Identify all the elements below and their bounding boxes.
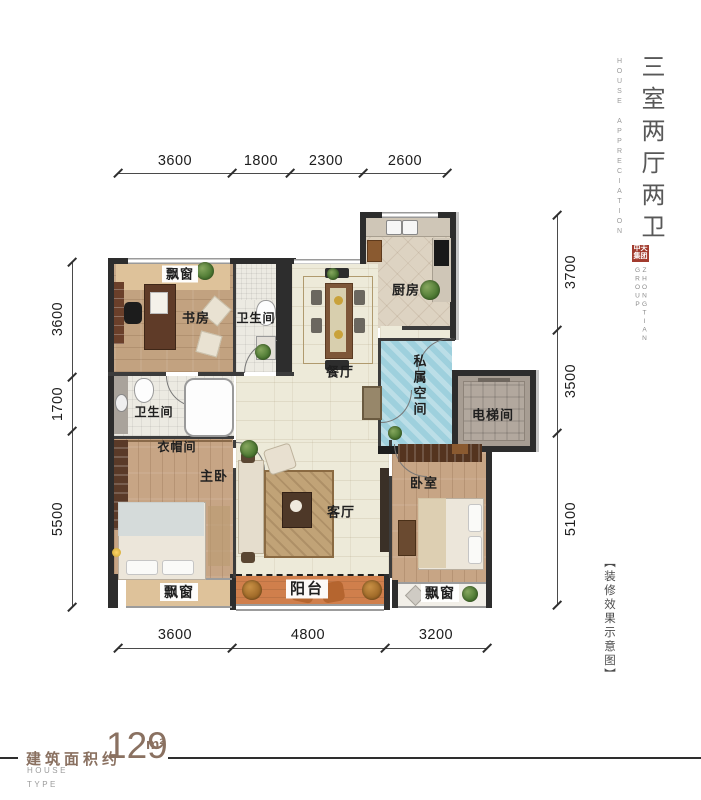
master-rug [208,506,230,566]
wall-corner [108,574,118,608]
teddy-shelf-item [452,444,468,454]
master-bed-blanket [118,502,204,536]
wall-living-bedroom [389,476,392,578]
bay-window-glass [126,606,232,608]
dim-top-3: 2300 [309,153,343,169]
dining-chair [311,318,322,333]
dim-bottom-1: 3600 [158,627,192,643]
wall-outer-line [536,370,539,452]
dim-top-4: 2600 [388,153,422,169]
footer-rule-left [0,757,18,759]
wall-balcony-right [384,574,390,610]
wall-elevator-top [452,370,536,376]
wall-mid [276,372,294,376]
toilet [134,378,154,403]
dim-top-2: 1800 [244,153,278,169]
side-table [241,552,255,563]
dim-left-1: 3600 [50,302,66,336]
pillow [162,560,194,575]
label-elevator: 电梯间 [472,409,514,422]
page-subtitle-en: HOUSE APPRECIATION [616,58,623,238]
balcony-boundary-dashed [236,574,384,576]
dim-top-1: 3600 [158,153,192,169]
label-bay-window-top: 飘窗 [162,266,198,283]
dim-left-3: 5500 [50,502,66,536]
pillow [468,504,482,532]
dim-bottom-3: 3200 [419,627,453,643]
bedroom-blanket [418,498,446,568]
study-papers [150,292,168,314]
dining-plate [334,330,343,339]
plant [196,262,214,280]
label-bedroom: 卧室 [410,477,438,490]
kitchen-sink [402,220,418,235]
bathtub [184,378,234,437]
balcony-rail [236,609,384,611]
study-chair [124,302,142,324]
dim-line-bottom [118,648,487,649]
label-private-space: 私属空间 [413,354,426,418]
bedroom-dresser [398,520,416,556]
label-dining: 餐厅 [326,366,354,379]
wall-bedroom-right [486,452,492,584]
dim-right-2: 3500 [563,364,579,398]
plant [240,440,258,458]
label-bath-top: 卫生间 [236,312,275,324]
dining-chair [311,290,322,305]
bath-sink [115,394,128,412]
study-bookshelf [114,282,124,344]
entry-mat [362,386,382,420]
plant [462,586,478,602]
wall-bay-post [486,580,492,608]
dim-left-2: 1700 [50,387,66,421]
tv-console [380,468,389,552]
label-cloakroom: 衣帽间 [157,441,196,453]
dining-plate [334,296,343,305]
plant [327,268,339,280]
dim-right-1: 3700 [563,255,579,289]
wall-elevator-left [452,370,458,452]
kitchen-cart [367,240,382,262]
wall-bay-post [392,580,398,608]
footer-rule-right [168,757,701,759]
plant [388,426,402,440]
label-balcony: 阳台 [286,580,328,599]
dim-line-right [557,215,558,605]
kitchen-stove [434,240,449,266]
footer-type: TYPE [27,780,58,789]
render-disclaimer-note: 【装修效果示意图】 [601,556,617,682]
dried-plant [242,580,262,600]
label-bath-mid: 卫生间 [134,406,173,418]
bedside-lamp [112,548,121,557]
dining-chair [354,290,365,305]
window-bay-top [128,258,232,264]
zhongtian-seal-logo: 中天集团 [632,245,649,262]
label-living: 客厅 [327,506,355,519]
wall-outer-line [456,212,459,340]
wall-mid [198,372,244,376]
label-master-bedroom: 主卧 [200,470,228,483]
kitchen-sink [386,220,402,235]
table-decor [290,500,302,512]
page-title: 三室两厅两卫 [633,54,668,246]
dim-line-top [118,173,448,174]
dried-plant [362,580,382,600]
floor-plan-page: 三室两厅两卫 HOUSE APPRECIATION 中天集团 ZHONGTIAN… [0,0,701,800]
dim-right-3: 5100 [563,502,579,536]
bay-window-glass [398,606,486,608]
window-dining-top [294,259,362,264]
zhongtian-group-name: ZHONGTIAN GROUP [634,267,648,349]
dim-line-left [72,262,73,607]
label-kitchen: 厨房 [392,284,420,297]
bath-top-shower-tile [236,264,276,300]
area-unit: m² [146,736,164,753]
label-study: 书房 [182,312,210,325]
plant [255,344,271,360]
pillow [468,536,482,564]
bedroom-wardrobe [398,444,482,462]
label-bay-window-left: 飘窗 [160,583,198,601]
corridor-floor [236,376,292,440]
label-bay-window-right: 飘窗 [421,584,459,602]
elevator-door-line [478,378,510,382]
footer-house: HOUSE [27,766,68,775]
sofa [238,460,264,554]
dim-bottom-2: 4800 [291,627,325,643]
plant [420,280,440,300]
wall-master-living [233,468,236,578]
dining-chair [354,318,365,333]
wall-bath-dining [276,258,292,375]
pillow [126,560,158,575]
wall-kitchen-bottom [402,326,450,330]
balcony-rail [236,604,384,606]
